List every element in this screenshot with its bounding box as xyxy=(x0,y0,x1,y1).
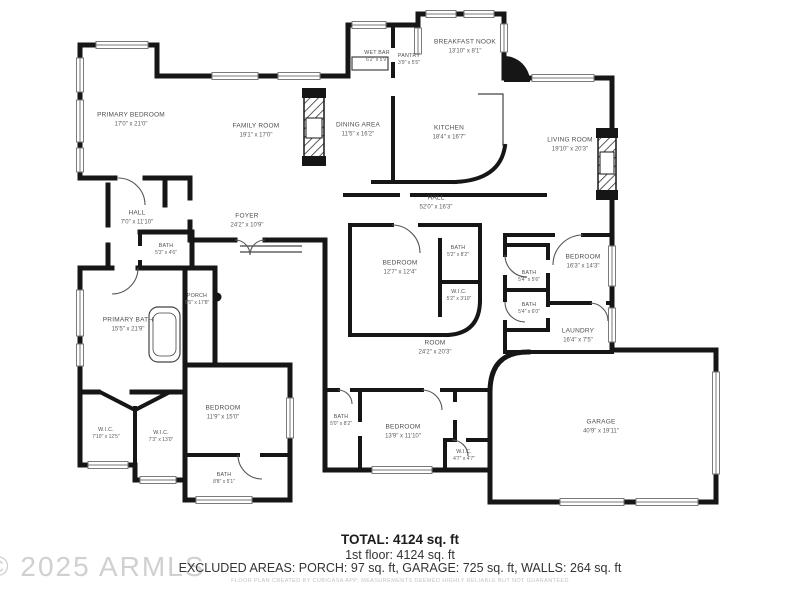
fireplace-family-room xyxy=(302,88,326,166)
room-label-dining-area: DINING AREA11'5" x 16'2" xyxy=(336,122,380,139)
first-floor-area-text: 1st floor: 4124 sq. ft xyxy=(0,548,800,562)
room-label-bedroom-middle: BEDROOM12'7" x 12'4" xyxy=(383,260,418,277)
room-label-wic-middle: W.I.C.5'2" x 3'10" xyxy=(447,289,472,303)
room-label-bath-east-lower: BATH5'4" x 6'0" xyxy=(518,302,540,316)
room-label-wic-west1: W.I.C.7'10" x 12'5" xyxy=(92,427,119,441)
room-label-family-room: FAMILY ROOM19'1" x 17'0" xyxy=(233,123,280,140)
room-label-breakfast-nook: BREAKFAST NOOK13'10" x 8'1" xyxy=(434,39,496,56)
room-label-garage: GARAGE40'9" x 19'11" xyxy=(583,419,619,436)
room-label-bedroom-southwest: BEDROOM11'9" x 15'0" xyxy=(206,405,241,422)
porch-column xyxy=(213,293,222,302)
room-label-bath-south: BATH5'0" x 8'2" xyxy=(330,414,352,428)
room-label-bath-east-upper: BATH5'4" x 5'6" xyxy=(518,270,540,284)
solid-details xyxy=(213,56,531,302)
room-label-living-room: LIVING ROOM19'10" x 20'3" xyxy=(547,137,593,154)
floor-plan-drawing xyxy=(0,0,800,600)
room-label-wic-south: W.I.C.4'7" x 4'7" xyxy=(453,449,475,463)
room-label-wet-bar: WET BAR6'2" x 5'9" xyxy=(364,50,389,64)
room-label-primary-bath: PRIMARY BATH15'5" x 21'9" xyxy=(103,317,153,334)
fireplace-living-room xyxy=(596,128,618,200)
room-label-bedroom-east: BEDROOM16'3" x 14'3" xyxy=(566,254,601,271)
excluded-areas-text: EXCLUDED AREAS: PORCH: 97 sq. ft, GARAGE… xyxy=(0,561,800,575)
room-label-bath-southwest: BATH8'8" x 5'1" xyxy=(213,472,235,486)
room-label-porch: PORCH5'5" x 17'8" xyxy=(185,293,210,307)
room-label-bedroom-south: BEDROOM13'9" x 11'10" xyxy=(385,424,421,441)
room-label-wic-west2: W.I.C.7'3" x 13'0" xyxy=(149,430,174,444)
room-label-hall-main: HALL52'0" x 16'3" xyxy=(420,195,453,212)
room-label-foyer: FOYER24'2" x 10'9" xyxy=(231,213,264,230)
floor-plan: PRIMARY BEDROOM17'0" x 21'0" FAMILY ROOM… xyxy=(0,0,800,600)
room-label-pantry: PANTRY3'9" x 5'5" xyxy=(398,53,420,67)
disclaimer-text: FLOOR PLAN CREATED BY CUBICASA APP; MEAS… xyxy=(0,578,800,584)
room-label-bath-hall: BATH5'3" x 4'6" xyxy=(155,243,177,257)
room-label-room: ROOM24'2" x 20'3" xyxy=(419,340,452,357)
room-label-primary-bedroom: PRIMARY BEDROOM17'0" x 21'0" xyxy=(97,112,165,129)
total-area-text: TOTAL: 4124 sq. ft xyxy=(0,532,800,547)
room-label-bath-middle: BATH5'2" x 8'2" xyxy=(447,245,469,259)
room-label-laundry: LAUNDRY16'4" x 7'5" xyxy=(562,328,594,345)
room-label-kitchen: KITCHEN18'4" x 16'7" xyxy=(433,125,466,142)
room-label-hall-west: HALL7'0" x 11'10" xyxy=(121,210,153,227)
